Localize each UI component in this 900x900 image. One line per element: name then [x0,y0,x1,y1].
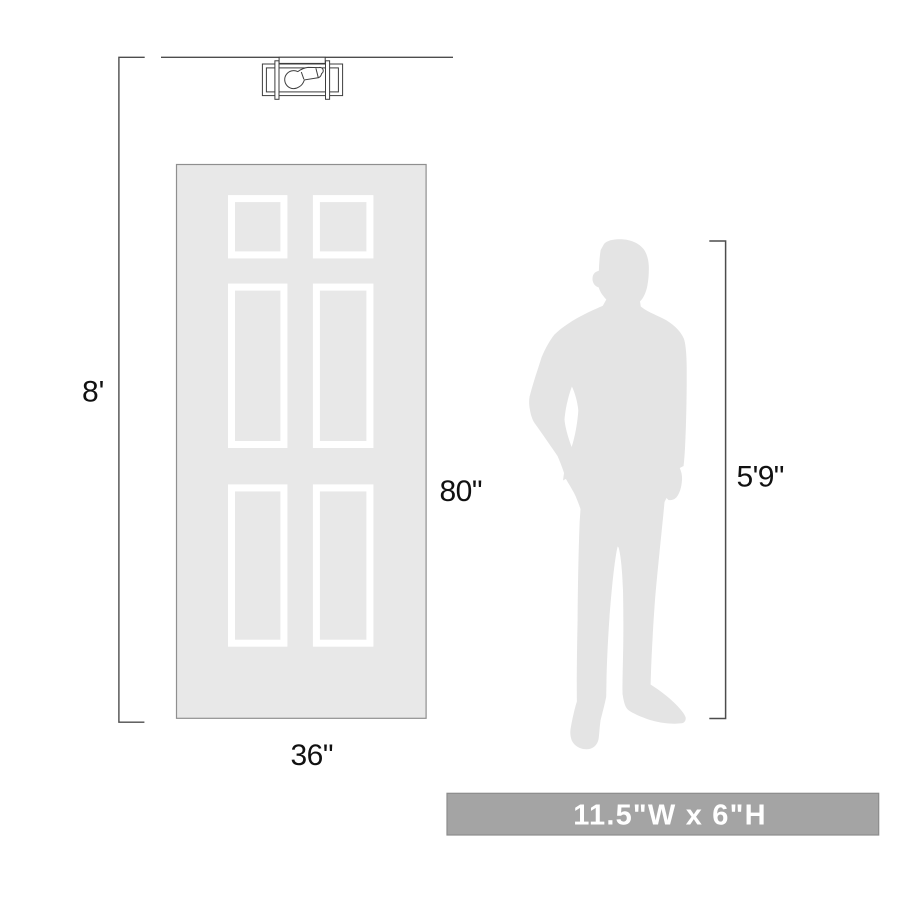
svg-text:8': 8' [82,376,104,409]
svg-text:36": 36" [291,739,334,772]
svg-text:11.5"W x 6"H: 11.5"W x 6"H [573,800,766,832]
svg-text:80": 80" [440,475,483,508]
svg-text:5'9": 5'9" [737,461,784,494]
